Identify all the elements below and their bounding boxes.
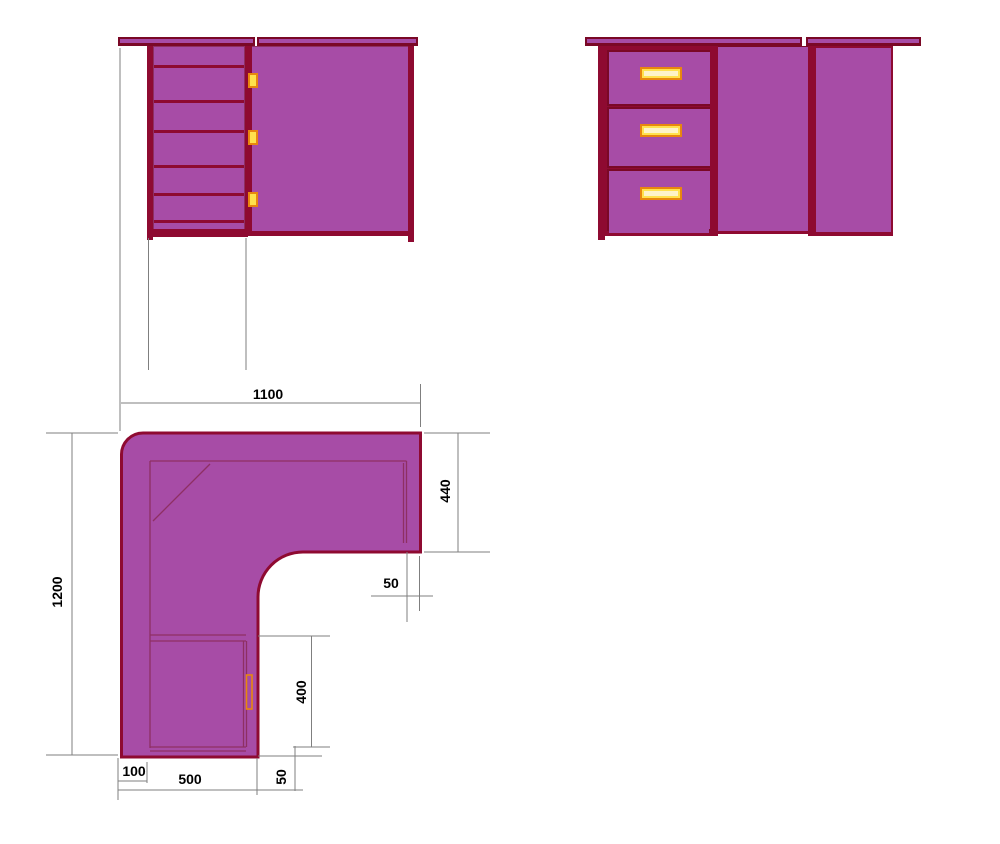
side-panel bbox=[252, 46, 408, 236]
plan-desktop-outline bbox=[121, 433, 420, 757]
side-drawer-handle-2 bbox=[248, 130, 258, 145]
dimension-lines bbox=[46, 384, 490, 800]
side-tabletop-right bbox=[257, 37, 418, 46]
front-center-divider bbox=[710, 46, 718, 236]
front-drawer-handle-3 bbox=[640, 187, 682, 200]
drawer-divider bbox=[154, 100, 244, 103]
side-tabletop-left bbox=[118, 37, 255, 46]
plan-inner-lines bbox=[150, 461, 407, 751]
dim-label-100: 100 bbox=[114, 763, 154, 779]
corner-brace-diagonal bbox=[153, 464, 210, 521]
side-drawer-handle-1 bbox=[248, 73, 258, 88]
front-drawer-handle-1 bbox=[640, 67, 682, 80]
side-right-edge bbox=[408, 46, 414, 242]
front-middle-panel bbox=[718, 46, 808, 234]
drawer-divider bbox=[154, 65, 244, 68]
front-tabletop-right bbox=[806, 37, 921, 46]
dim-label-500: 500 bbox=[162, 771, 218, 787]
front-drawer-box bbox=[605, 46, 713, 236]
front-drawer-handle-2 bbox=[640, 124, 682, 137]
drawer-divider bbox=[154, 193, 244, 196]
front-left-side-panel bbox=[598, 46, 605, 240]
side-drawer-handle-3 bbox=[248, 192, 258, 207]
plan-door-handle bbox=[247, 675, 253, 709]
drawer-divider bbox=[154, 130, 244, 133]
drawer-plinth bbox=[609, 229, 709, 233]
dim-label-1100: 1100 bbox=[240, 386, 296, 402]
dim-label-1200: 1200 bbox=[49, 564, 65, 620]
drawing-canvas: 1100 1200 440 50 400 100 500 50 bbox=[0, 0, 1000, 844]
drawer-divider bbox=[154, 220, 244, 223]
dim-label-440: 440 bbox=[437, 463, 453, 519]
drawer-front-2 bbox=[607, 107, 715, 168]
front-tabletop-left bbox=[585, 37, 802, 46]
dim-label-50-bottom: 50 bbox=[273, 763, 289, 791]
side-drawer-stack bbox=[153, 46, 245, 231]
drawer-divider bbox=[154, 165, 244, 168]
drawer-front-3 bbox=[607, 169, 715, 231]
dim-label-50-right: 50 bbox=[377, 575, 405, 591]
front-right-panel bbox=[814, 46, 893, 236]
dim-label-400: 400 bbox=[293, 664, 309, 720]
side-stack-bottom-rail bbox=[147, 229, 248, 237]
